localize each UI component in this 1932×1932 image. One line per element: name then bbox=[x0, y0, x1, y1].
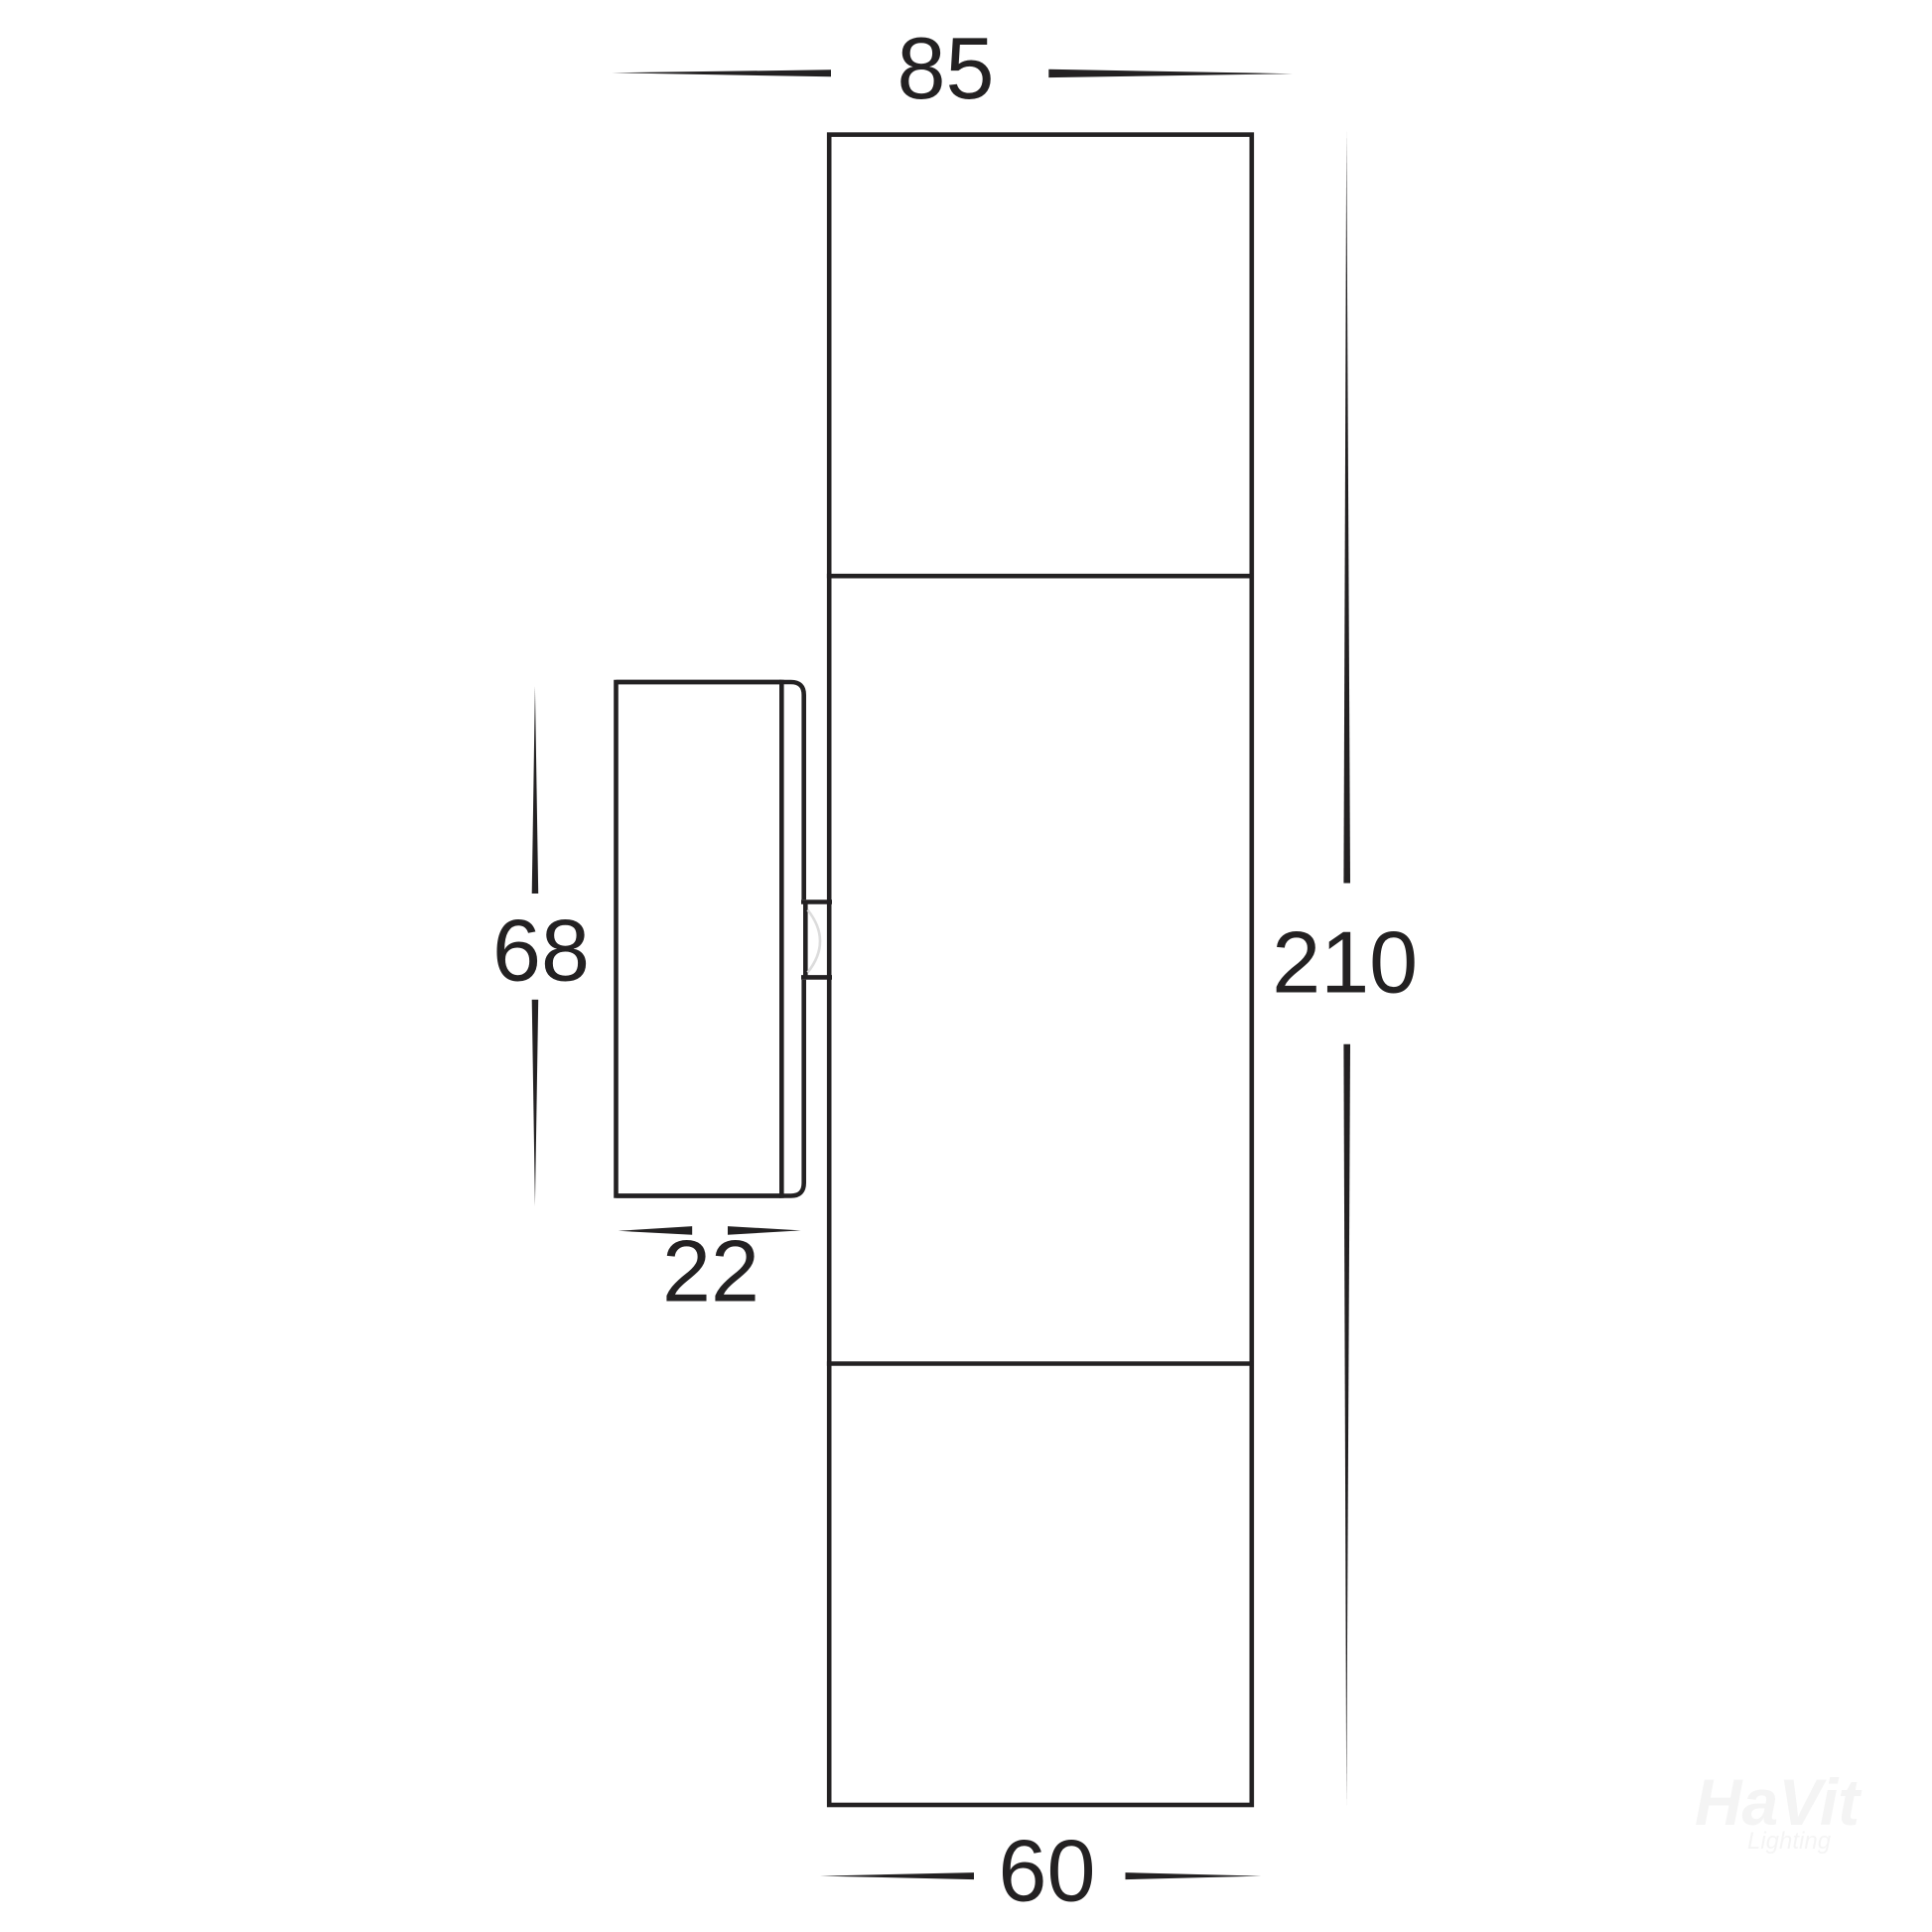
svg-text:60: 60 bbox=[999, 1822, 1096, 1920]
svg-text:Lighting: Lighting bbox=[1747, 1828, 1832, 1855]
svg-text:85: 85 bbox=[897, 19, 995, 117]
svg-text:210: 210 bbox=[1272, 913, 1418, 1012]
svg-text:68: 68 bbox=[492, 901, 590, 1000]
svg-text:22: 22 bbox=[662, 1222, 759, 1320]
